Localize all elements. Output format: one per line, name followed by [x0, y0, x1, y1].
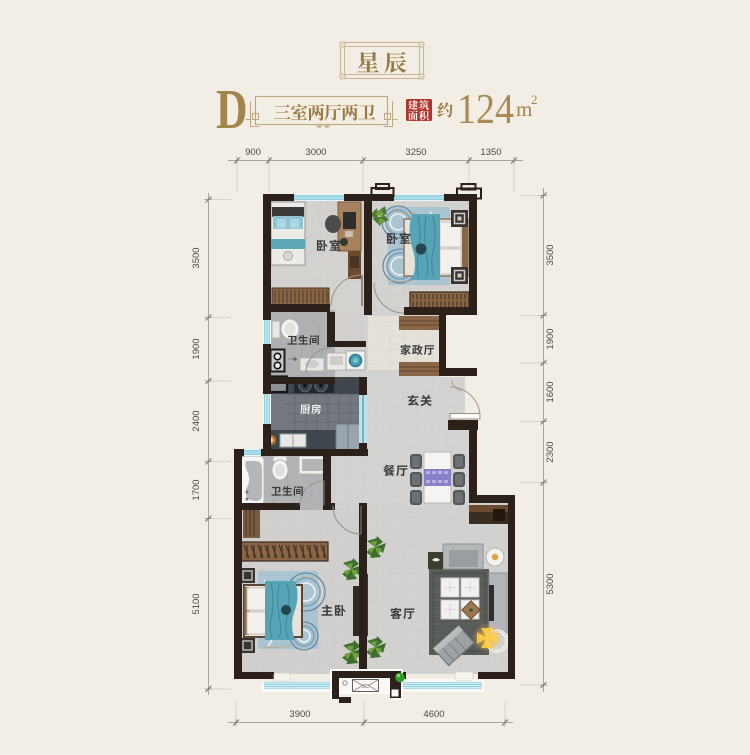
svg-text:900: 900 [245, 147, 261, 158]
svg-text:2400: 2400 [191, 410, 202, 431]
svg-text:3000: 3000 [305, 147, 326, 158]
svg-text:3900: 3900 [289, 709, 310, 720]
svg-text:4600: 4600 [423, 709, 444, 720]
svg-text:3500: 3500 [545, 244, 556, 265]
svg-text:124: 124 [457, 87, 514, 133]
svg-text:3C: 3C [362, 684, 369, 690]
svg-text:2300: 2300 [545, 441, 556, 462]
svg-text:3500: 3500 [191, 247, 202, 268]
svg-text:5300: 5300 [545, 573, 556, 594]
svg-text:2: 2 [531, 92, 538, 107]
svg-text:D: D [216, 78, 248, 140]
svg-text:1350: 1350 [480, 147, 501, 158]
svg-text:1900: 1900 [545, 328, 556, 349]
svg-text:3250: 3250 [405, 147, 426, 158]
svg-text:1600: 1600 [545, 381, 556, 402]
svg-text:5100: 5100 [191, 593, 202, 614]
svg-text:1700: 1700 [191, 479, 202, 500]
svg-text:1900: 1900 [191, 338, 202, 359]
svg-text:m: m [516, 97, 532, 121]
